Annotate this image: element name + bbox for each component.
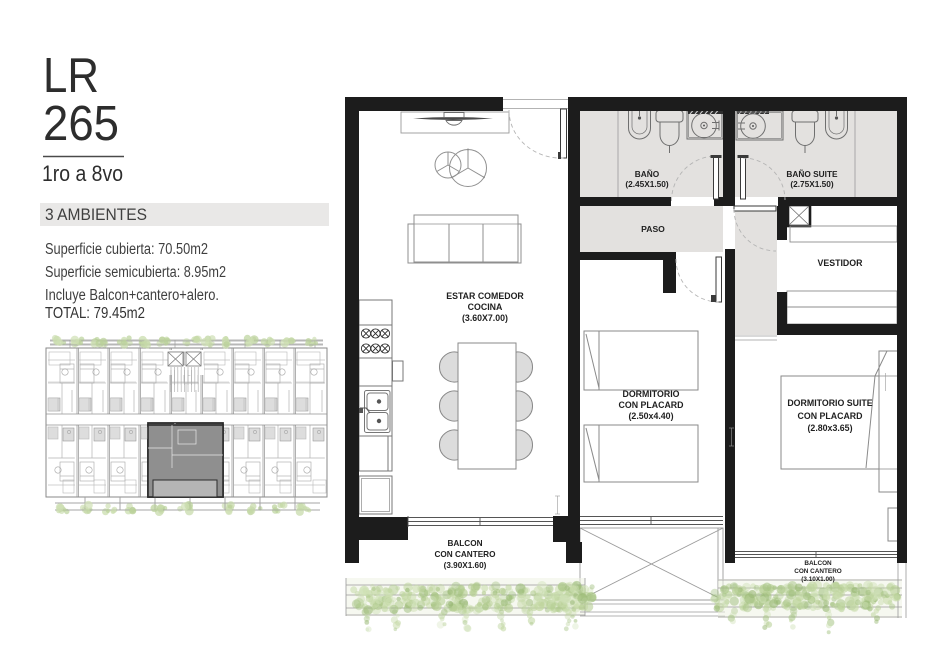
- svg-text:(3.90X1.60): (3.90X1.60): [444, 561, 487, 570]
- svg-text:BALCON: BALCON: [447, 539, 482, 548]
- svg-text:BAÑO: BAÑO: [635, 169, 660, 179]
- svg-text:3 AMBIENTES: 3 AMBIENTES: [45, 206, 147, 224]
- svg-text:PASO: PASO: [641, 224, 665, 234]
- svg-text:Superficie semicubierta: 8.95m: Superficie semicubierta: 8.95m2: [45, 264, 226, 281]
- svg-text:COCINA: COCINA: [468, 302, 503, 312]
- svg-text:BALCON: BALCON: [804, 560, 832, 567]
- svg-text:CON PLACARD: CON PLACARD: [619, 400, 684, 410]
- svg-text:DORMITORIO: DORMITORIO: [622, 389, 679, 399]
- svg-text:CON CANTERO: CON CANTERO: [435, 550, 497, 559]
- svg-text:CON PLACARD: CON PLACARD: [798, 411, 863, 421]
- svg-text:Incluye Balcon+cantero+alero.: Incluye Balcon+cantero+alero.: [45, 287, 219, 304]
- svg-text:(3.60X7.00): (3.60X7.00): [462, 313, 508, 323]
- svg-text:(2.50x4.40): (2.50x4.40): [629, 411, 674, 421]
- svg-text:LR: LR: [43, 49, 99, 103]
- svg-text:CON CANTERO: CON CANTERO: [794, 568, 842, 575]
- svg-text:ESTAR COMEDOR: ESTAR COMEDOR: [446, 291, 524, 301]
- svg-text:BAÑO SUITE: BAÑO SUITE: [786, 169, 838, 179]
- svg-text:TOTAL: 79.45m2: TOTAL: 79.45m2: [45, 305, 145, 322]
- svg-text:Superficie cubierta: 70.50m2: Superficie cubierta: 70.50m2: [45, 241, 208, 258]
- svg-text:(2.75X1.50): (2.75X1.50): [790, 179, 834, 189]
- svg-text:VESTIDOR: VESTIDOR: [818, 258, 864, 268]
- svg-text:(2.80x3.65): (2.80x3.65): [808, 423, 853, 433]
- svg-text:265: 265: [43, 97, 119, 151]
- svg-text:(2.45X1.50): (2.45X1.50): [625, 179, 669, 189]
- svg-text:(3.10X1.00): (3.10X1.00): [801, 576, 834, 583]
- svg-text:DORMITORIO SUITE: DORMITORIO SUITE: [787, 398, 872, 408]
- svg-text:1ro a 8vo: 1ro a 8vo: [42, 161, 123, 186]
